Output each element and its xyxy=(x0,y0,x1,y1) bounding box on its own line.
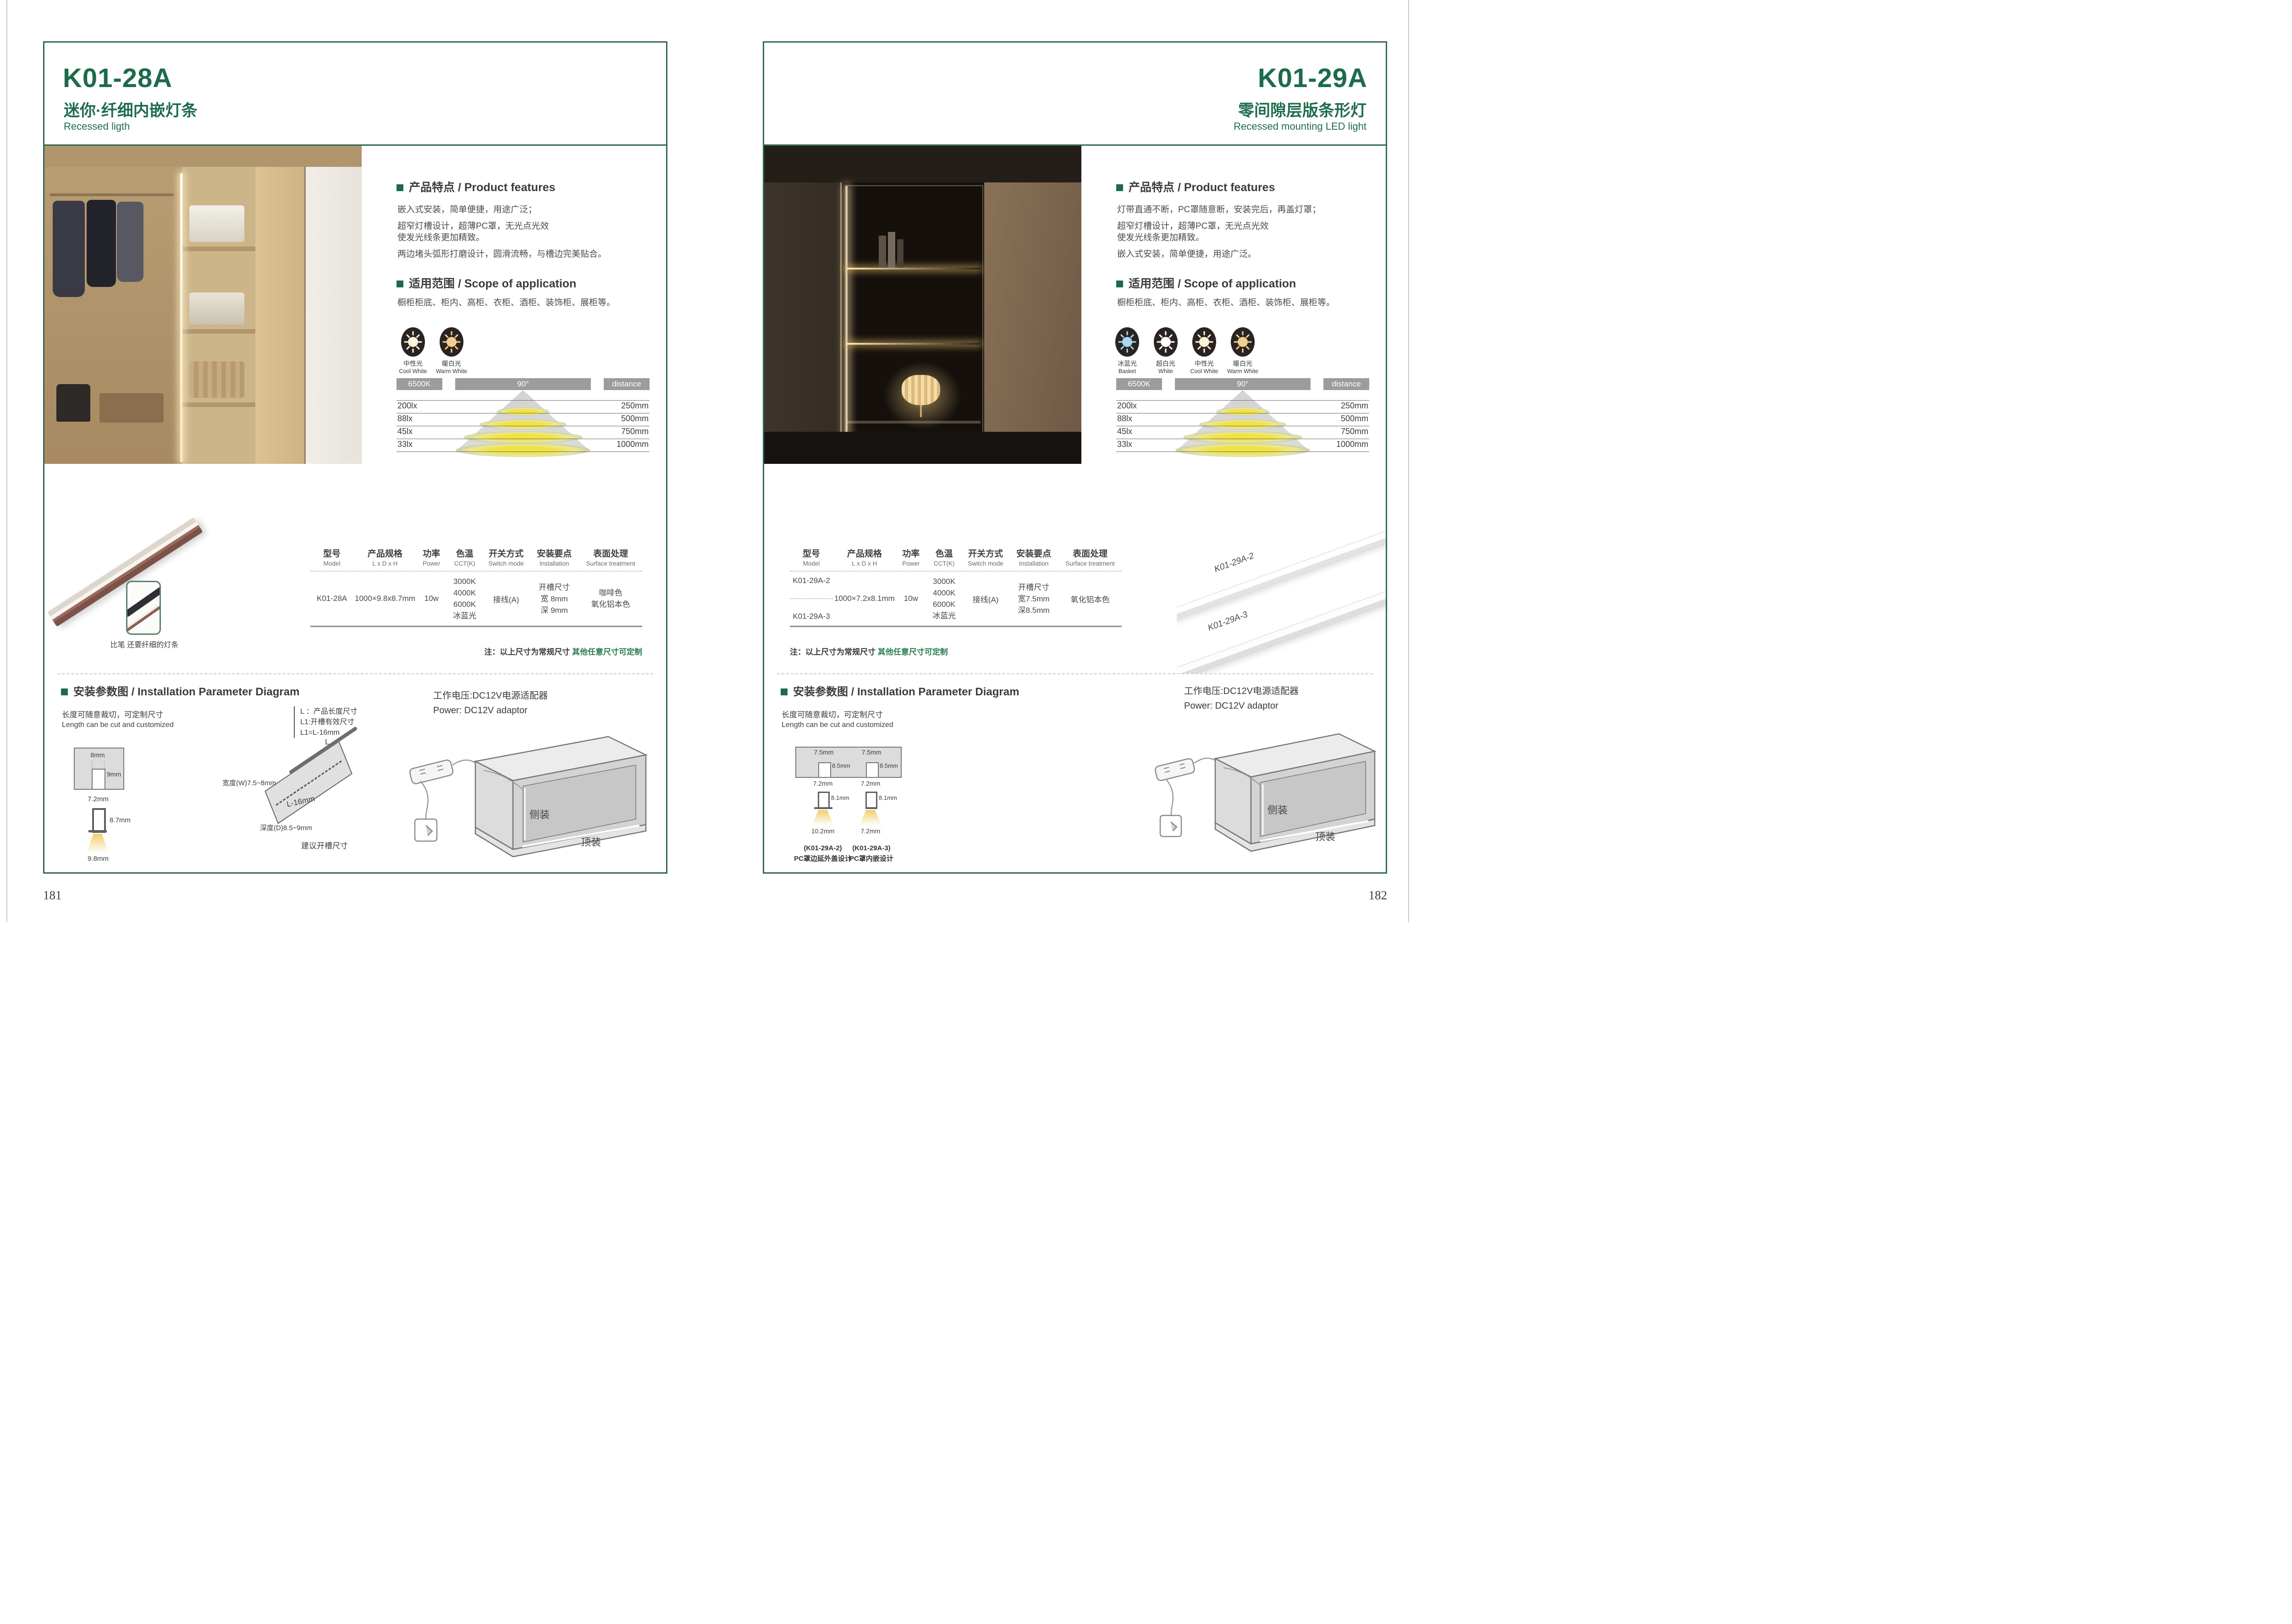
ice-blue-icon xyxy=(1115,327,1140,357)
page-left: K01-28A 迷你·纤细内嵌灯条 Recessed ligth xyxy=(43,41,667,874)
groove-width-label: 7.5mm xyxy=(853,749,890,756)
power-en: Power: DC12V adaptor xyxy=(433,705,528,716)
feature-line: 嵌入式安装，简单便捷，用途广泛。 xyxy=(1117,248,1377,260)
light-pool xyxy=(496,407,550,416)
page-right: K01-29A 零间隙层版条形灯 Recessed mounting LED l… xyxy=(763,41,1387,874)
light-pool xyxy=(1183,431,1302,443)
distance-value: 500mm xyxy=(621,414,649,424)
mounting-scene: 侧装 顶装 xyxy=(1154,724,1383,866)
pleated-lamp xyxy=(902,375,940,405)
light-pool xyxy=(479,419,567,429)
lux-value: 200lx xyxy=(1117,401,1137,411)
feature-line: 嵌入式安装，简单便捷，用途广泛； xyxy=(397,204,657,215)
profile-label: K01-29A-2 xyxy=(1213,551,1256,575)
cell-surface: 咖啡色氧化铝本色 xyxy=(579,587,642,610)
green-square-bullet xyxy=(1116,281,1123,287)
glowing-shelf xyxy=(847,343,981,345)
trim-mark-right xyxy=(1408,0,1409,922)
feature-line: 超窄灯槽设计，超薄PC罩，无光点光效使发光线条更加精致。 xyxy=(1117,220,1377,243)
distance-bar: distance xyxy=(1323,378,1369,390)
distance-value: 500mm xyxy=(1341,414,1368,424)
light-cone-small xyxy=(859,810,882,826)
shelf xyxy=(182,402,255,407)
profile-label: K01-29A-3 xyxy=(1207,610,1249,633)
cell-power: 10w xyxy=(896,594,926,603)
distance-value: 750mm xyxy=(1341,427,1368,436)
lux-value: 88lx xyxy=(397,414,413,424)
product-photo-cabinet xyxy=(764,146,1081,464)
page-number-left: 181 xyxy=(43,888,62,903)
features-text: 灯带直通不断，PC罩随意断，安装完后，再盖灯罩； 超窄灯槽设计，超薄PC罩，无光… xyxy=(1117,204,1377,265)
book xyxy=(879,236,886,268)
wall-plug xyxy=(1160,815,1181,837)
upper-panel xyxy=(764,146,1081,182)
base-width-label: 9.8mm xyxy=(83,855,113,863)
light-cone-small xyxy=(812,810,834,826)
groove-depth-label: 8.5mm xyxy=(880,762,898,769)
cell-install: 开槽尺寸宽7.5mm深8.5mm xyxy=(1009,582,1059,616)
groove-depth-label: 9mm xyxy=(107,771,121,778)
top-mount-label: 顶装 xyxy=(581,837,601,848)
page-subtitle-cn: 零间隙层版条形灯 xyxy=(1238,98,1366,121)
woven-basket xyxy=(189,361,244,398)
book xyxy=(897,239,904,268)
page-title: K01-29A xyxy=(1258,63,1367,94)
profile-width-label: 7.2mm xyxy=(808,780,838,787)
distance-value: 750mm xyxy=(621,427,649,436)
table-note: 注：以上尺寸为常规尺寸 其他任意尺寸可定制 xyxy=(310,645,642,657)
variant-caption: (K01-29A-3)PC罩内嵌设计 xyxy=(838,843,904,864)
mounting-scene: 侧装 顶装 xyxy=(407,728,659,866)
groove-notch xyxy=(866,762,879,777)
cct-option-cool-white: 中性光 Cool White xyxy=(395,327,431,374)
pen-comparison-inset xyxy=(126,581,161,635)
door-seam xyxy=(304,167,306,464)
led-profile-coffee xyxy=(47,517,203,627)
green-square-bullet xyxy=(397,184,403,191)
trim-mark-left xyxy=(6,0,7,922)
cell-size: 1000×9.8x8.7mm xyxy=(353,594,417,603)
catalog-spread: K01-28A 迷你·纤细内嵌灯条 Recessed ligth xyxy=(0,0,1415,922)
cct-option-warm-white: 暖白光 Warm White xyxy=(1224,327,1261,374)
install-heading: 安装参数图 / Installation Parameter Diagram xyxy=(781,683,1019,699)
light-pool xyxy=(1216,407,1269,416)
section-divider xyxy=(57,673,653,674)
led-strip-glow xyxy=(846,186,848,460)
board-depth-label: 深度(D)8.5~9mm xyxy=(260,823,312,832)
features-heading: 产品特点 / Product features xyxy=(1116,178,1275,195)
profile-height-label: 8.1mm xyxy=(879,794,897,801)
green-square-bullet xyxy=(781,688,788,695)
spec-table-row: K01-29A-2 K01-29A-3 1000×7.2x8.1mm 10w 3… xyxy=(790,572,1122,626)
cct-option-cool-white: 中性光 Cool White xyxy=(1186,327,1223,374)
base-width-label: 7.2mm xyxy=(855,827,886,835)
features-heading: 产品特点 / Product features xyxy=(397,178,556,195)
light-pool xyxy=(1199,419,1286,429)
light-cone-small xyxy=(87,834,109,853)
lux-value: 45lx xyxy=(1117,427,1132,436)
wire xyxy=(420,781,428,819)
profiles-photo-area: K01-29A-2 K01-29A-3 xyxy=(1177,510,1386,673)
beam-angle-bar: 90° xyxy=(455,378,591,390)
distance-bar: distance xyxy=(604,378,650,390)
model-divider xyxy=(790,598,833,599)
scope-text: 橱柜柜底、柜内、高柜、衣柜、酒柜、装饰柜、展柜等。 xyxy=(397,296,663,308)
groove-cross-section: 8mm 9mm xyxy=(74,748,124,790)
door-seam-glow xyxy=(840,182,842,464)
right-panel xyxy=(984,182,1081,464)
scope-text: 橱柜柜底、柜内、高柜、衣柜、酒柜、装饰柜、展柜等。 xyxy=(1117,296,1383,308)
product-photo-wardrobe xyxy=(44,146,362,464)
power-adaptor xyxy=(409,759,453,784)
beam-angle-bar: 90° xyxy=(1175,378,1311,390)
lux-value: 45lx xyxy=(397,427,413,436)
drawer-basket xyxy=(99,393,164,423)
double-groove-board: 7.5mm 7.5mm 8.5mm 8.5mm xyxy=(795,747,902,778)
side-mount-label: 侧装 xyxy=(529,809,550,820)
page-subtitle-cn: 迷你·纤细内嵌灯条 xyxy=(64,98,198,121)
wardrobe-rail xyxy=(50,193,174,196)
board-diagram xyxy=(264,741,353,824)
shelf xyxy=(182,247,255,251)
cut-note-cn: 长度可随意裁切，可定制尺寸 xyxy=(782,708,883,720)
cct-option-white: 超白光 White xyxy=(1147,327,1184,374)
power-adaptor xyxy=(1154,758,1195,781)
shelf xyxy=(182,329,255,334)
groove-depth-label: 8.5mm xyxy=(832,762,850,769)
base-width-label: 10.2mm xyxy=(808,827,838,835)
cool-white-icon xyxy=(1192,327,1217,357)
warm-white-icon xyxy=(1230,327,1255,357)
cell-model: K01-29A-2 K01-29A-3 xyxy=(790,572,833,626)
cell-power: 10w xyxy=(417,594,446,603)
distance-value: 1000mm xyxy=(617,440,649,449)
profile-flange-wide xyxy=(814,807,832,809)
spec-table-row: K01-28A 1000×9.8x8.7mm 10w 3000K4000K600… xyxy=(310,572,642,626)
profile-flange xyxy=(88,830,107,832)
page-subtitle-en: Recessed ligth xyxy=(64,121,130,132)
cell-switch: 接线(A) xyxy=(483,593,529,605)
section-divider xyxy=(777,673,1373,674)
hanging-garment xyxy=(117,202,143,282)
white-icon xyxy=(1153,327,1178,357)
green-square-bullet xyxy=(61,688,68,695)
groove-width-label: 8mm xyxy=(80,751,115,759)
dim-guides xyxy=(92,760,105,769)
spec-table: 型号Model 产品规格L x D x H 功率Power 色温CCT(K) 开… xyxy=(790,547,1122,657)
light-pool xyxy=(1175,443,1310,457)
profile-width-label: 7.2mm xyxy=(83,795,113,803)
feature-line: 灯带直通不断，PC罩随意断，安装完后，再盖灯罩； xyxy=(1117,204,1377,215)
distance-value: 250mm xyxy=(621,401,649,411)
install-heading: 安装参数图 / Installation Parameter Diagram xyxy=(61,683,299,699)
power-en: Power: DC12V adaptor xyxy=(1184,701,1278,711)
spec-table-header: 型号Model 产品规格L x D x H 功率Power 色温CCT(K) 开… xyxy=(790,547,1122,567)
light-pool xyxy=(456,443,590,457)
hanging-garment xyxy=(53,201,85,297)
lux-value: 200lx xyxy=(397,401,417,411)
counter xyxy=(764,432,1081,464)
wall-plug xyxy=(415,819,437,841)
power-cn: 工作电压:DC12V电源适配器 xyxy=(433,688,548,701)
book xyxy=(888,232,895,268)
board-length-label: L xyxy=(325,738,329,747)
profile-height-label: 8.7mm xyxy=(110,816,131,824)
lamp-stand xyxy=(920,405,922,417)
wardrobe-top-panel xyxy=(44,146,362,167)
green-square-bullet xyxy=(397,281,403,287)
left-door-panel xyxy=(764,182,842,464)
board-width-label: 宽度(W)7.5~8mm xyxy=(222,778,276,787)
sliding-door-white xyxy=(306,167,362,464)
spec-table-header: 型号Model 产品规格L x D x H 功率Power 色温CCT(K) 开… xyxy=(310,547,642,567)
table-rule xyxy=(790,626,1122,627)
distance-value: 1000mm xyxy=(1336,440,1368,449)
cell-switch: 接线(A) xyxy=(962,593,1008,605)
profile-width-label: 7.2mm xyxy=(855,780,886,787)
photometric-diagram: 6500K 90° distance 200lx 88lx 45lx 33lx … xyxy=(1116,378,1369,453)
wire xyxy=(1166,779,1173,815)
profile-cross-section xyxy=(818,792,830,809)
profile-height-label: 8.1mm xyxy=(831,794,849,801)
photometric-diagram: 6500K 90° distance 200lx 88lx 45lx 33lx … xyxy=(397,378,650,453)
photo-caption: 比笔 还要纤细的灯条 xyxy=(94,639,195,650)
kettle-prop xyxy=(56,384,90,422)
glowing-shelf xyxy=(847,268,981,270)
groove-width-label: 7.5mm xyxy=(805,749,842,756)
glass-shelf xyxy=(847,421,981,424)
spec-table: 型号Model 产品规格L x D x H 功率Power 色温CCT(K) 开… xyxy=(310,547,642,657)
cell-cct: 3000K4000K6000K冰蓝光 xyxy=(926,576,963,622)
folded-linen xyxy=(189,205,244,242)
pen xyxy=(126,584,161,618)
top-mount-label: 顶装 xyxy=(1315,831,1335,842)
distance-value: 250mm xyxy=(1341,401,1368,411)
profile-photo-area: 比笔 还要纤细的灯条 xyxy=(52,508,208,660)
cool-white-icon xyxy=(401,327,425,357)
page-title: K01-28A xyxy=(63,63,172,94)
features-text: 嵌入式安装，简单便捷，用途广泛； 超窄灯槽设计，超薄PC罩，无光点光效使发光线条… xyxy=(397,204,657,265)
folded-linen xyxy=(189,292,244,325)
cut-note-en: Length can be cut and customized xyxy=(62,721,174,729)
cell-size: 1000×7.2x8.1mm xyxy=(833,594,896,603)
cct-option-ice-blue: 冰蓝光 Basket xyxy=(1109,327,1146,374)
board-suggest-label: 建议开槽尺寸 xyxy=(301,839,348,851)
cut-note-cn: 长度可随意裁切，可定制尺寸 xyxy=(62,708,163,720)
cell-model: K01-28A xyxy=(310,594,353,603)
cell-install: 开槽尺寸宽 8mm深 9mm xyxy=(529,582,579,616)
profile-flange-flush xyxy=(865,807,877,809)
groove-notch xyxy=(92,769,105,789)
hanging-garment xyxy=(87,200,116,287)
feature-line: 超窄灯槽设计，超薄PC罩，无光点光效使发光线条更加精致。 xyxy=(397,220,657,243)
profile-cross-section xyxy=(865,792,877,809)
lux-value: 33lx xyxy=(1117,440,1132,449)
warm-white-icon xyxy=(439,327,464,357)
side-mount-label: 侧装 xyxy=(1267,804,1288,816)
table-note: 注：以上尺寸为常规尺寸 其他任意尺寸可定制 xyxy=(790,645,1122,657)
cell-cct: 3000K4000K6000K冰蓝光 xyxy=(446,576,483,622)
feature-line: 两边堵头弧形打磨设计，圆滑流畅，与槽边完美贴合。 xyxy=(397,248,657,260)
table-rule xyxy=(310,626,642,627)
profile-cross-section xyxy=(92,808,106,833)
cct-bar: 6500K xyxy=(397,378,442,390)
groove-notch xyxy=(818,762,831,777)
cut-note-en: Length can be cut and customized xyxy=(782,721,893,729)
page-number-right: 182 xyxy=(1369,888,1388,903)
cell-surface: 氧化铝本色 xyxy=(1058,593,1122,605)
cct-bar: 6500K xyxy=(1116,378,1162,390)
lux-value: 33lx xyxy=(397,440,413,449)
light-pool xyxy=(463,431,583,443)
sliding-door-wood xyxy=(255,167,306,464)
led-strip-glow xyxy=(180,173,182,462)
cct-option-warm-white: 暖白光 Warm White xyxy=(433,327,470,374)
scope-heading: 适用范围 / Scope of application xyxy=(397,275,576,291)
green-square-bullet xyxy=(1116,184,1123,191)
scope-heading: 适用范围 / Scope of application xyxy=(1116,275,1296,291)
page-subtitle-en: Recessed mounting LED light xyxy=(1234,121,1366,132)
power-cn: 工作电压:DC12V电源适配器 xyxy=(1184,683,1299,697)
lux-value: 88lx xyxy=(1117,414,1132,424)
